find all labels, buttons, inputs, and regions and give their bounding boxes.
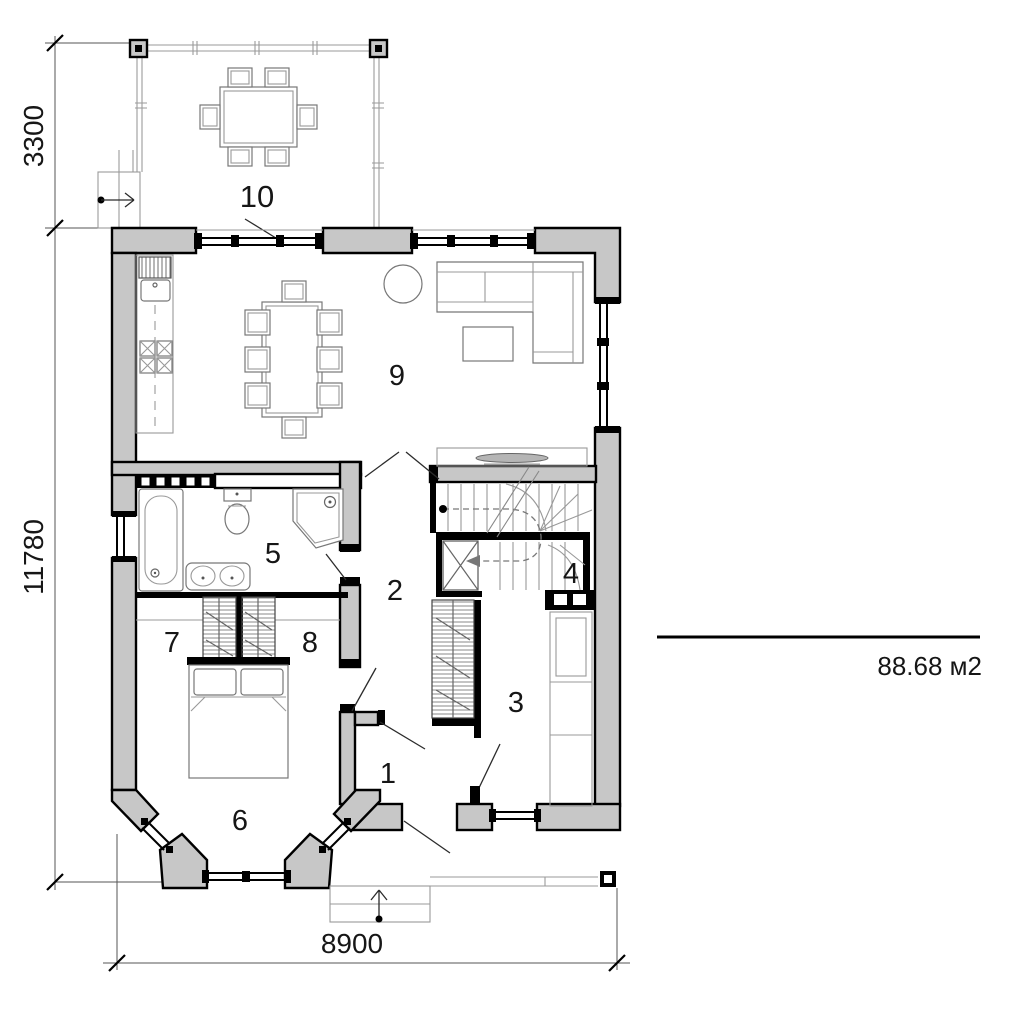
- coffee-table: [463, 327, 513, 361]
- bathtub: [139, 489, 183, 591]
- tv-console: [437, 448, 587, 466]
- hall-cabinets: [550, 612, 592, 806]
- lounge-set: [384, 262, 587, 466]
- kitchen-sink: [141, 280, 170, 301]
- room-label-bedroom: 6: [232, 805, 248, 837]
- entry-porch: [330, 871, 616, 923]
- vestibule-door-marker: [380, 722, 425, 749]
- area-value: 88.68 м2: [877, 651, 982, 681]
- round-table: [384, 265, 422, 303]
- floor-plan-canvas: 3300 11780 8900: [0, 0, 1024, 1011]
- dining-set: [245, 281, 342, 438]
- room-label-hallway: 2: [387, 575, 403, 607]
- living-room-side-window: [600, 304, 607, 426]
- hall-window: [494, 812, 535, 819]
- room-label-living-kitchen: 9: [389, 360, 405, 392]
- dimension-terrace-depth: 3300: [18, 105, 49, 167]
- entry-door-leaf: [478, 744, 500, 790]
- toilet: [224, 489, 251, 534]
- dimension-house-depth: 11780: [18, 519, 49, 595]
- room-label-stairs: 4: [563, 558, 579, 590]
- area-note: 88.68 м2: [657, 637, 982, 681]
- room-label-hall: 3: [508, 687, 524, 719]
- room-label-bathroom: 5: [265, 538, 281, 570]
- bathroom-door-marker: [326, 554, 346, 580]
- floor-plan-page: 3300 11780 8900: [0, 0, 1024, 1011]
- bathroom-window: [117, 517, 124, 556]
- kitchen-counter: [136, 255, 173, 433]
- bed: [187, 657, 290, 778]
- pillow: [194, 669, 236, 695]
- tv: [476, 454, 548, 463]
- corner-shower: [293, 489, 343, 548]
- stair-top-wall: [430, 466, 596, 482]
- stove: [140, 341, 172, 373]
- dimension-house-width: 8900: [321, 928, 383, 959]
- terrace-step: [98, 150, 141, 228]
- room-label-closet-left: 7: [164, 627, 180, 659]
- bathroom-fixtures: [139, 489, 343, 591]
- dining-table: [262, 302, 322, 417]
- terrace-dining-table: [220, 87, 297, 147]
- pillow: [241, 669, 283, 695]
- double-sink: [186, 563, 250, 590]
- entry-swing-marker: [404, 821, 450, 853]
- room-label-entry: 1: [380, 758, 396, 790]
- fridge: [139, 257, 171, 278]
- living-hall-opening-marker: [365, 452, 439, 479]
- bedroom-door-marker: [352, 668, 376, 711]
- room-label-terrace: 10: [240, 179, 274, 214]
- room-label-closet-right: 8: [302, 627, 318, 659]
